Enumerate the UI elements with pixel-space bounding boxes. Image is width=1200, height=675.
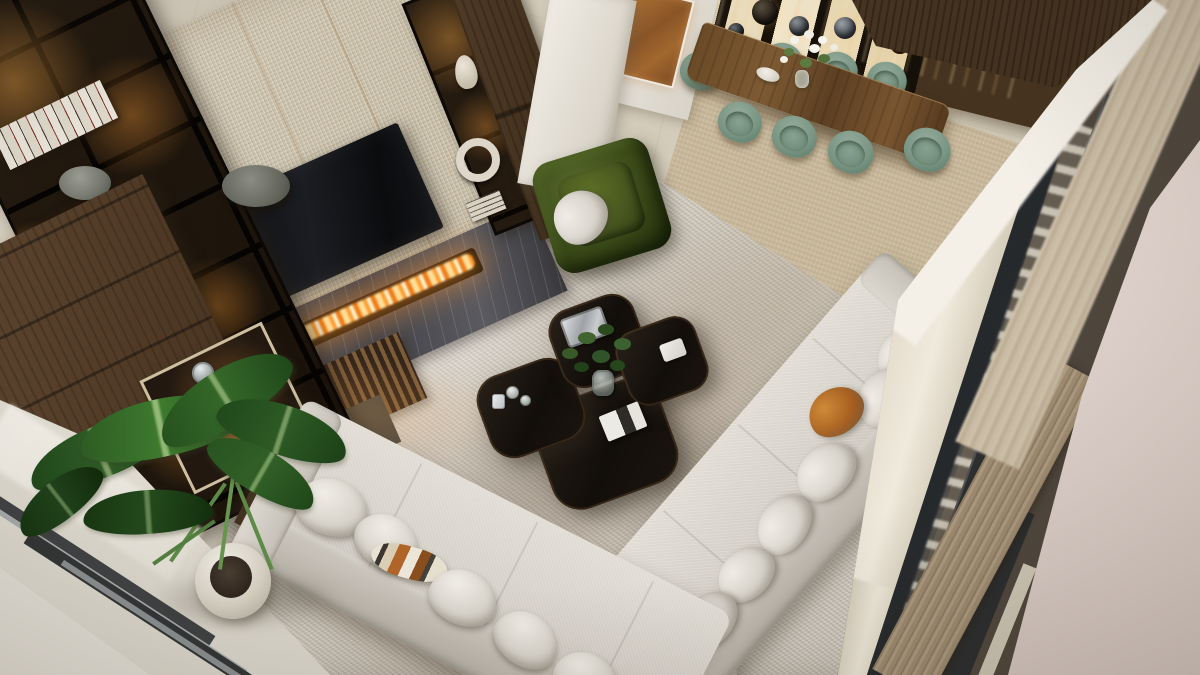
plant-leaf-tuft bbox=[574, 362, 589, 372]
bouquet-flower bbox=[804, 30, 814, 39]
bouquet-flower bbox=[830, 44, 838, 51]
glass-vase bbox=[592, 370, 614, 396]
bouquet-flower bbox=[780, 56, 788, 63]
perfume-bottle bbox=[492, 394, 505, 409]
ceramic-bowl-large bbox=[222, 165, 290, 207]
plant-leaf-tuft bbox=[578, 332, 596, 344]
plant-leaf-tuft bbox=[562, 348, 578, 359]
plant-leaf-tuft bbox=[614, 338, 631, 350]
bouquet-foliage bbox=[818, 54, 830, 63]
loft-interior-photo bbox=[0, 0, 1200, 675]
plant-leaf-tuft bbox=[592, 350, 610, 363]
bouquet-foliage bbox=[800, 58, 812, 68]
bouquet-flower bbox=[809, 44, 820, 53]
plant-leaf-tuft bbox=[598, 324, 614, 335]
bouquet-flower bbox=[818, 36, 827, 44]
plant-soil bbox=[210, 556, 252, 598]
glass-candle bbox=[520, 395, 531, 406]
flower-bouquet bbox=[778, 28, 842, 76]
pendant-lamp-icon bbox=[752, 0, 778, 25]
bouquet-foliage bbox=[784, 48, 794, 56]
ring-sculpture bbox=[456, 138, 500, 182]
glass-candle bbox=[506, 386, 519, 399]
plant-leaf-tuft bbox=[610, 360, 625, 371]
bouquet-flower bbox=[790, 36, 799, 44]
